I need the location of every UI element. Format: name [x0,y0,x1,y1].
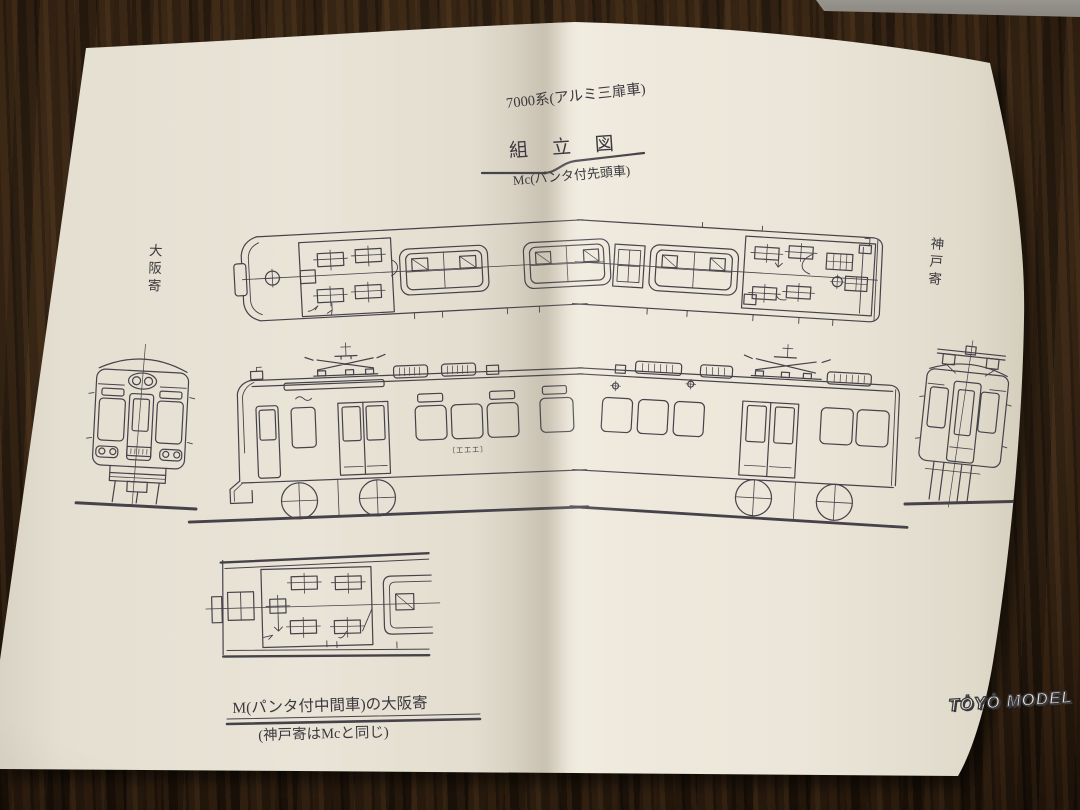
photo-of-assembly-sheet: { "page": { "series_title": "7000系(アルミ三扉… [0,0,1080,810]
label-kobe-side: 神戸寄 [922,236,946,290]
bottom-caption-line2: (神戸寄はMcと同じ) [258,721,389,745]
label-osaka-side: 大阪寄 [142,243,164,296]
car-emblem-marks: 〔工工工〕 [448,445,488,456]
paper-scene [0,0,1080,810]
